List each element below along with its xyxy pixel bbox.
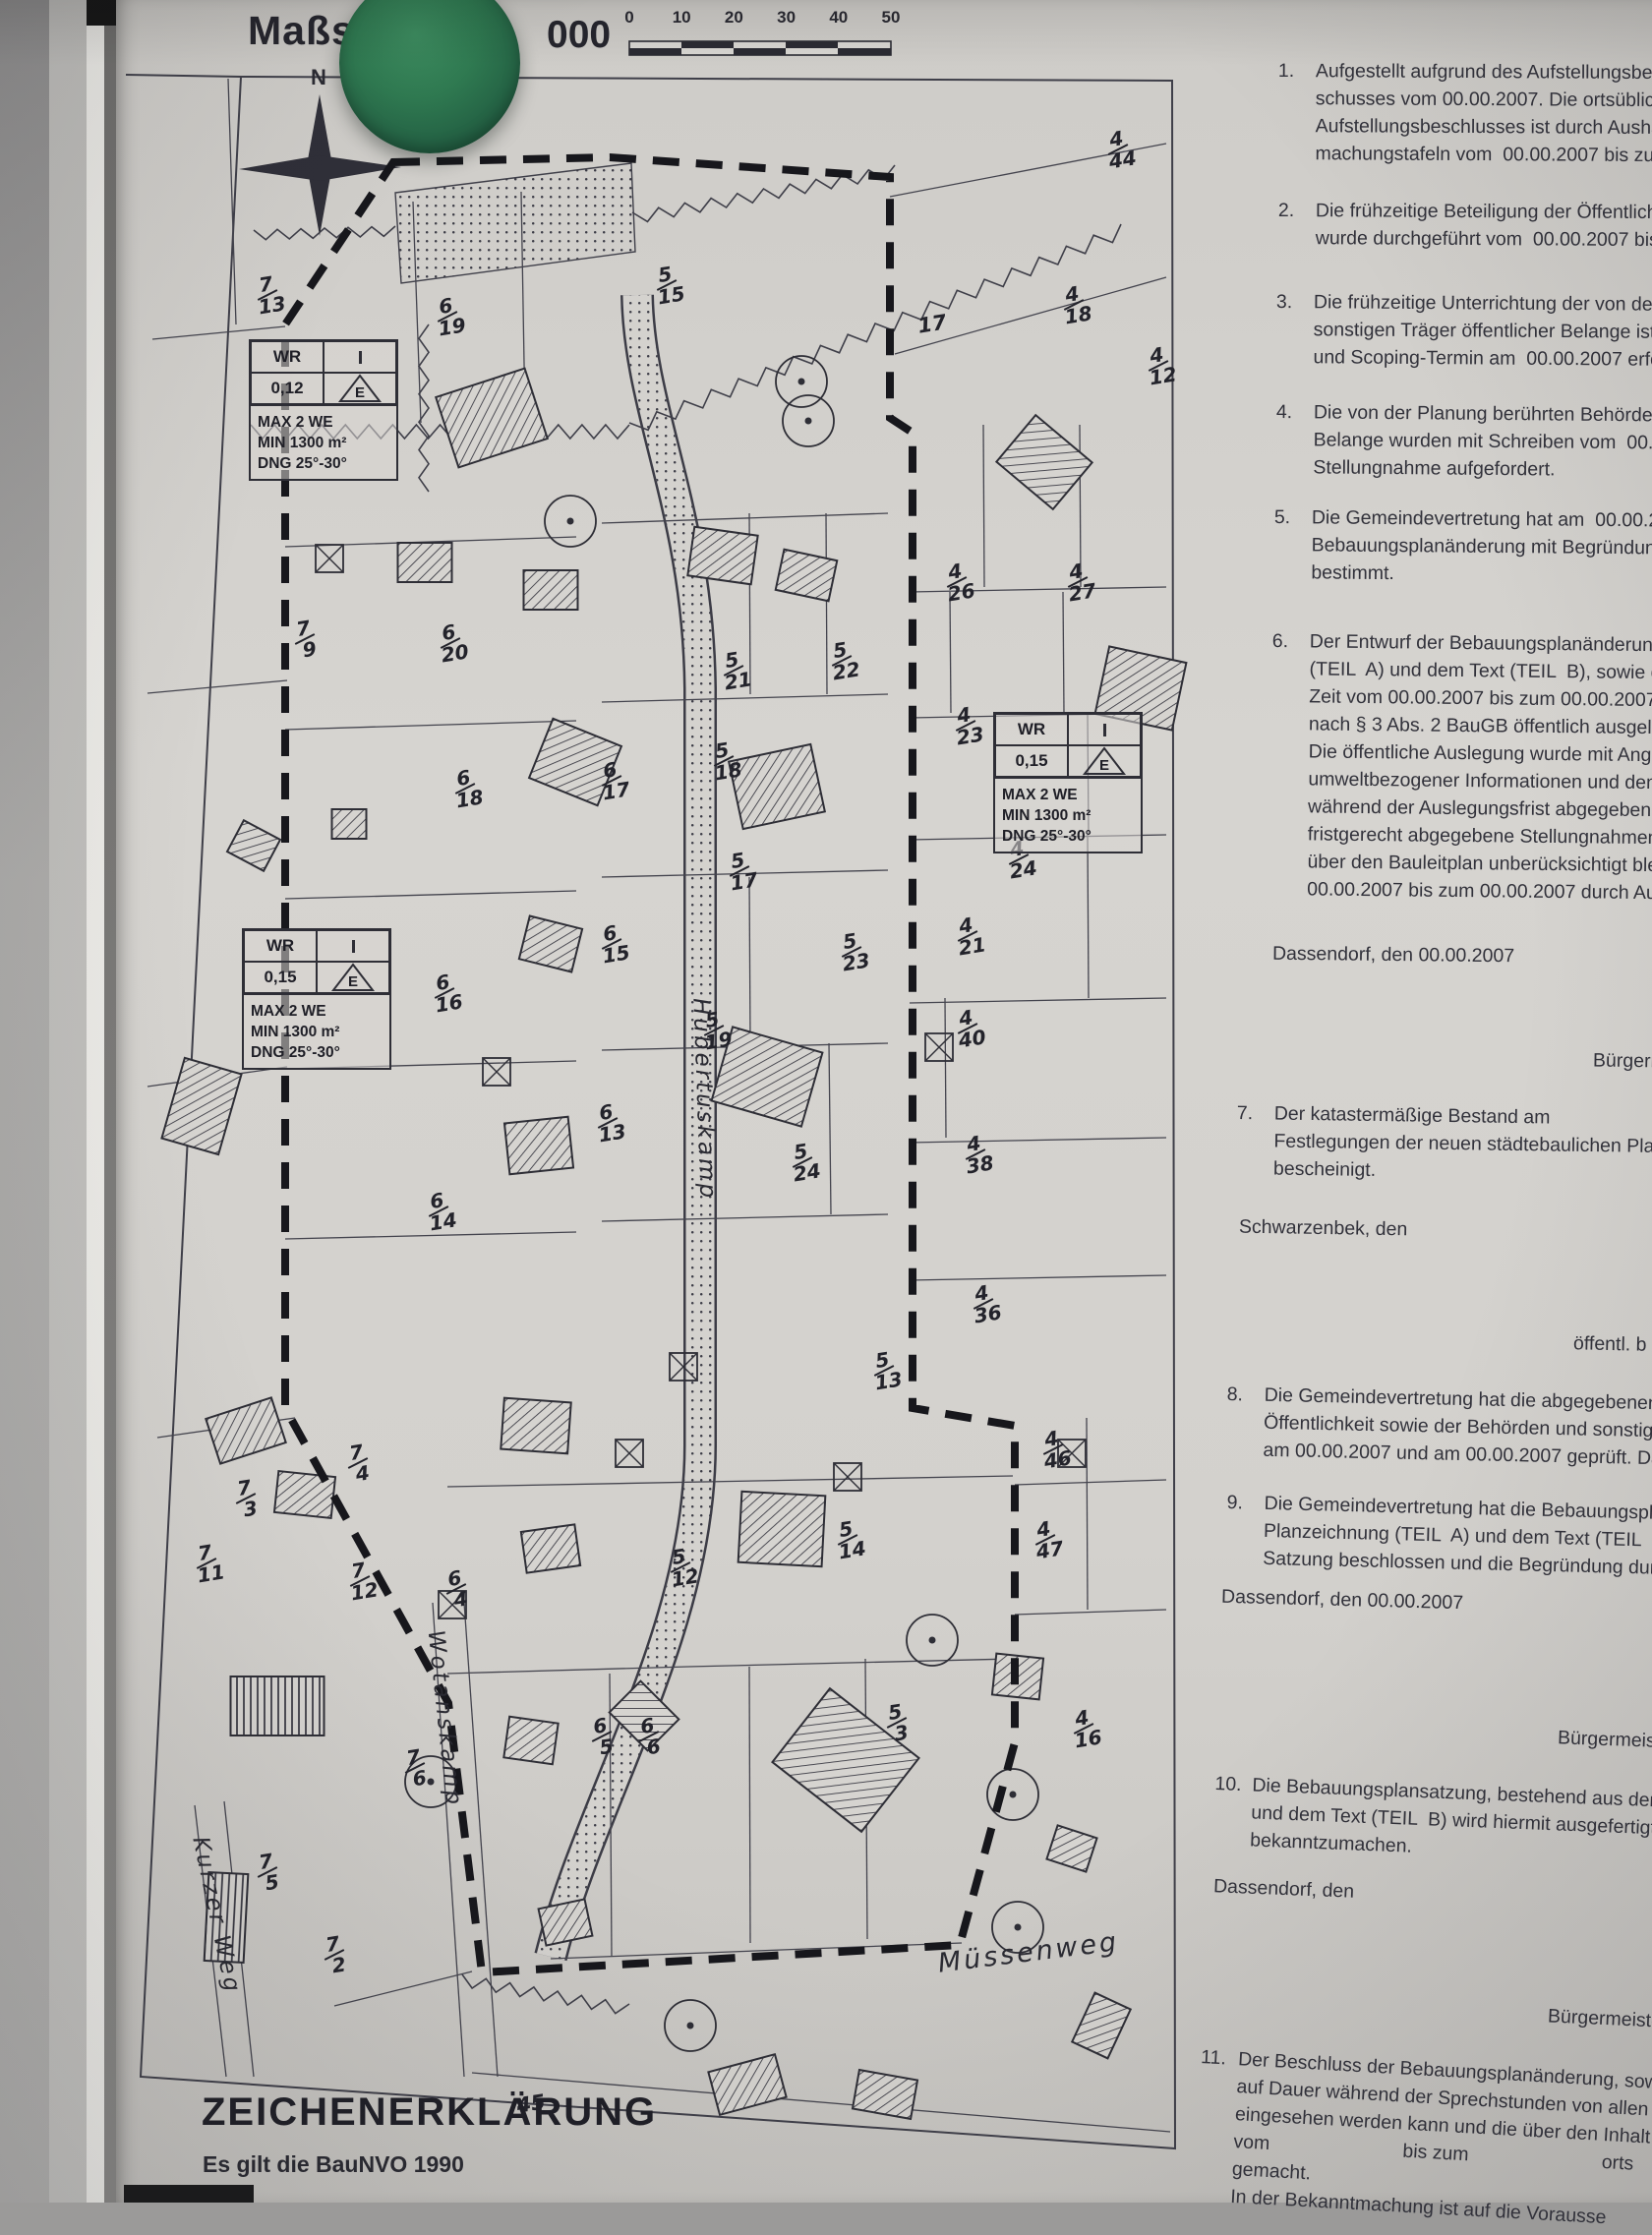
e-triangle-icon: E bbox=[1068, 745, 1141, 777]
note-item: 4.Die von der Planung berührten Behörden… bbox=[1275, 398, 1652, 485]
symbol-tick bbox=[317, 930, 389, 962]
info-box-wr: WR 0,15 E MAX 2 WE MIN 1300 m² DNG 25°-3… bbox=[993, 712, 1143, 853]
note-item: 3.Die frühzeitige Unterrichtung der von … bbox=[1275, 288, 1652, 374]
scale-tick: 30 bbox=[777, 8, 796, 28]
svg-text:E: E bbox=[355, 384, 365, 401]
parcel-label: 426 bbox=[940, 561, 973, 603]
parcel-label: 614 bbox=[422, 1191, 454, 1232]
svg-text:E: E bbox=[1099, 757, 1109, 774]
parcel-label: 412 bbox=[1142, 345, 1174, 386]
parcel-label: 712 bbox=[343, 1560, 376, 1602]
parcel-label: 524 bbox=[786, 1142, 818, 1183]
parcel-label: 418 bbox=[1057, 284, 1090, 325]
parcel-label: 619 bbox=[431, 296, 463, 337]
cut-off-heading-bar bbox=[124, 2185, 254, 2203]
note-item: 2.Die frühzeitige Beteiligung der Öffent… bbox=[1278, 197, 1652, 254]
note-fragment: Bürgermeis bbox=[1558, 1727, 1652, 1752]
north-label: N bbox=[311, 65, 326, 90]
info-box-wr: WR 0,12 E MAX 2 WE MIN 1300 m² DNG 25°-3… bbox=[249, 339, 398, 481]
parcel-label: 447 bbox=[1029, 1519, 1061, 1560]
parcel-label: 521 bbox=[717, 650, 749, 691]
note-fragment: Schwarzenbek, den bbox=[1239, 1216, 1408, 1242]
parcel-label: 514 bbox=[831, 1519, 863, 1560]
use-type: WR bbox=[251, 341, 324, 373]
parcel-label: 711 bbox=[190, 1543, 222, 1584]
note-item: 7.Der katastermäßige Bestand amFestlegun… bbox=[1236, 1099, 1652, 1188]
legend-title: ZEICHENERKLÄRUNG bbox=[202, 2090, 657, 2135]
note-item: 5.Die Gemeindevertretung hat am 00.00.20… bbox=[1273, 503, 1652, 590]
verge-band bbox=[395, 163, 635, 283]
note-item: 9.Die Gemeindevertretung hat die Bebauun… bbox=[1225, 1489, 1652, 1582]
note-fragment: Bürgerm bbox=[1593, 1049, 1652, 1073]
parcel-label: 440 bbox=[951, 1008, 983, 1049]
scale-tick: 40 bbox=[829, 8, 848, 28]
note-item: 11.Der Beschluss der Bebauungsplanänderu… bbox=[1193, 2043, 1652, 2235]
note-item: 1.Aufgestellt aufgrund des Aufstellungsb… bbox=[1277, 57, 1652, 169]
parcel-label: 616 bbox=[428, 972, 460, 1014]
parcel-label: 512 bbox=[664, 1547, 696, 1588]
parcel-label: 423 bbox=[949, 705, 981, 746]
scale-bar bbox=[629, 41, 891, 55]
parcel-label: 438 bbox=[959, 1134, 991, 1175]
parcel-label: 446 bbox=[1036, 1429, 1069, 1470]
note-item: 8.Die Gemeindevertretung hat die abgegeb… bbox=[1225, 1381, 1652, 1473]
parcel-label: 17 bbox=[916, 314, 948, 334]
parcel-label: 515 bbox=[650, 265, 682, 306]
note-fragment: Dassendorf, den 00.00.2007 bbox=[1272, 943, 1514, 969]
parcel-label: 427 bbox=[1061, 561, 1093, 603]
parcel-label: 617 bbox=[595, 760, 627, 801]
parcel-label: 518 bbox=[707, 740, 739, 782]
parcel-label: 618 bbox=[448, 768, 481, 809]
building-footprints bbox=[161, 369, 1186, 2119]
note-item: 6.Der Entwurf der Bebauungsplanänderung,… bbox=[1269, 627, 1652, 907]
symbol-tick bbox=[324, 341, 396, 373]
parcel-label: 620 bbox=[434, 622, 466, 664]
parcel-label: 713 bbox=[251, 274, 283, 316]
svg-text:E: E bbox=[348, 973, 358, 990]
parcel-label: 513 bbox=[867, 1350, 900, 1391]
ratio-value: 0,12 bbox=[251, 373, 324, 404]
scale-title-fragment: 000 bbox=[547, 14, 611, 57]
e-triangle-icon: E bbox=[324, 373, 396, 404]
symbol-tick bbox=[1068, 714, 1141, 745]
info-box-wr: WR 0,15 E MAX 2 WE MIN 1300 m² DNG 25°-3… bbox=[242, 928, 391, 1070]
parcel-label: 522 bbox=[825, 640, 857, 681]
scale-tick: 50 bbox=[882, 8, 901, 28]
e-triangle-icon: E bbox=[317, 962, 389, 993]
parcel-label: 436 bbox=[967, 1283, 999, 1324]
scale-tick: 10 bbox=[673, 8, 691, 28]
parcel-label: 421 bbox=[951, 915, 983, 957]
parcel-label: 444 bbox=[1101, 129, 1134, 170]
scale-tick: 20 bbox=[725, 8, 743, 28]
parcel-label: 523 bbox=[835, 931, 867, 972]
parcel-label: 613 bbox=[591, 1102, 623, 1144]
parcel-label: 517 bbox=[723, 851, 755, 892]
scale-tick: 0 bbox=[624, 8, 633, 28]
parcel-label: 416 bbox=[1067, 1708, 1099, 1749]
parcel-label: 615 bbox=[595, 923, 627, 965]
note-fragment: öffentl. b bbox=[1573, 1332, 1647, 1357]
legend-subtitle: Es gilt die BauNVO 1990 bbox=[203, 2151, 464, 2178]
photo-of-plan: Maßstab 000 01020304050 N 44471361951517… bbox=[0, 0, 1652, 2203]
